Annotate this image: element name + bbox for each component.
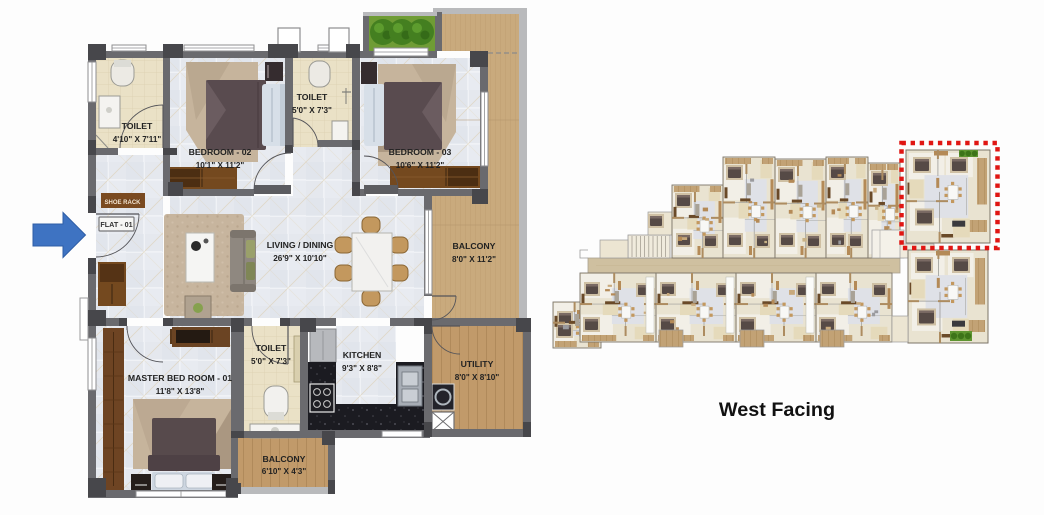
svg-text:TOILET: TOILET [122,121,153,131]
svg-text:West Facing: West Facing [719,399,835,421]
svg-text:LIVING / DINING: LIVING / DINING [267,240,334,250]
svg-text:BEDROOM - 03: BEDROOM - 03 [389,147,452,157]
svg-text:26'9" X 10'10": 26'9" X 10'10" [273,254,327,263]
svg-text:6'10" X 4'3": 6'10" X 4'3" [262,467,307,476]
svg-text:BALCONY: BALCONY [453,241,496,251]
svg-text:10'1" X 11'2": 10'1" X 11'2" [196,161,245,170]
svg-text:5'0" X 7'3": 5'0" X 7'3" [292,106,332,115]
svg-text:8'0" X 11'2": 8'0" X 11'2" [452,255,496,264]
svg-text:SHOE RACK: SHOE RACK [104,200,141,206]
svg-text:11'8" X 13'8": 11'8" X 13'8" [156,387,205,396]
svg-text:UTILITY: UTILITY [461,359,494,369]
svg-text:4'10" X 7'11": 4'10" X 7'11" [113,135,162,144]
svg-text:BEDROOM - 02: BEDROOM - 02 [189,147,252,157]
svg-text:TOILET: TOILET [297,92,328,102]
svg-text:MASTER BED ROOM - 01: MASTER BED ROOM - 01 [128,373,232,383]
svg-text:KITCHEN: KITCHEN [343,350,382,360]
svg-text:TOILET: TOILET [256,343,287,353]
svg-text:BALCONY: BALCONY [263,454,306,464]
svg-text:FLAT - 01: FLAT - 01 [100,220,132,229]
svg-text:10'6" X 11'2": 10'6" X 11'2" [396,161,445,170]
svg-text:5'0" X 7'3": 5'0" X 7'3" [251,357,291,366]
svg-text:8'0" X 8'10": 8'0" X 8'10" [455,373,500,382]
svg-text:9'3" X 8'8": 9'3" X 8'8" [342,364,382,373]
